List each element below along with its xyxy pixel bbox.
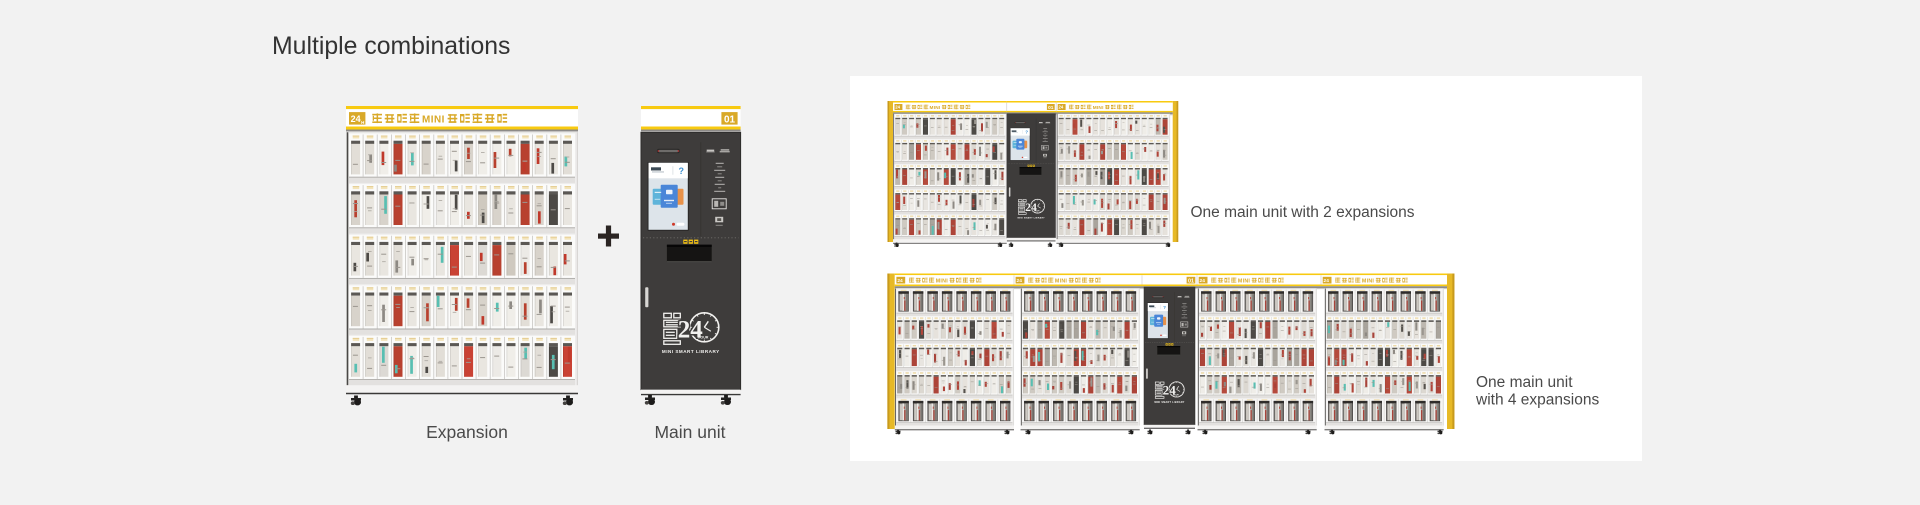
svg-text:One main unit with 2 expansion: One main unit with 2 expansions — [1191, 204, 1415, 221]
svg-text:24: 24 — [1200, 278, 1206, 284]
svg-text:HOUR: HOUR — [698, 336, 709, 340]
svg-text:MINI: MINI — [1238, 278, 1251, 284]
svg-text:Expansion: Expansion — [426, 422, 508, 442]
svg-text:01: 01 — [724, 114, 736, 125]
svg-text:MINI: MINI — [1093, 105, 1104, 111]
svg-text:MINI SMART LIBRARY: MINI SMART LIBRARY — [662, 349, 720, 354]
svg-text:01: 01 — [1188, 278, 1194, 284]
svg-text:?: ? — [1163, 305, 1166, 311]
svg-text:24: 24 — [1017, 278, 1023, 284]
svg-text:MINI: MINI — [1362, 278, 1375, 284]
svg-text:?: ? — [679, 166, 685, 176]
svg-text:with 4 expansions: with 4 expansions — [1475, 392, 1599, 409]
svg-text:MINI: MINI — [422, 114, 445, 125]
svg-text:24: 24 — [897, 278, 903, 284]
svg-text:24: 24 — [895, 105, 900, 110]
svg-text:Multiple combinations: Multiple combinations — [272, 33, 510, 60]
svg-text:01: 01 — [1048, 105, 1054, 111]
svg-text:24: 24 — [1059, 105, 1064, 110]
svg-text:H: H — [361, 120, 364, 125]
svg-text:Main unit: Main unit — [654, 422, 725, 442]
svg-text:MINI: MINI — [1055, 278, 1068, 284]
svg-text:?: ? — [1025, 130, 1028, 135]
svg-text:MINI: MINI — [930, 105, 941, 111]
svg-text:HOUR: HOUR — [1173, 394, 1179, 396]
svg-text:24: 24 — [1324, 278, 1330, 284]
svg-text:HOUR: HOUR — [1035, 211, 1041, 213]
svg-text:MINI: MINI — [936, 278, 949, 284]
svg-text:MINI SMART LIBRARY: MINI SMART LIBRARY — [1018, 216, 1046, 219]
svg-text:MINI SMART LIBRARY: MINI SMART LIBRARY — [1154, 401, 1184, 404]
svg-text:24: 24 — [351, 114, 361, 124]
svg-text:One main unit: One main unit — [1476, 374, 1573, 391]
